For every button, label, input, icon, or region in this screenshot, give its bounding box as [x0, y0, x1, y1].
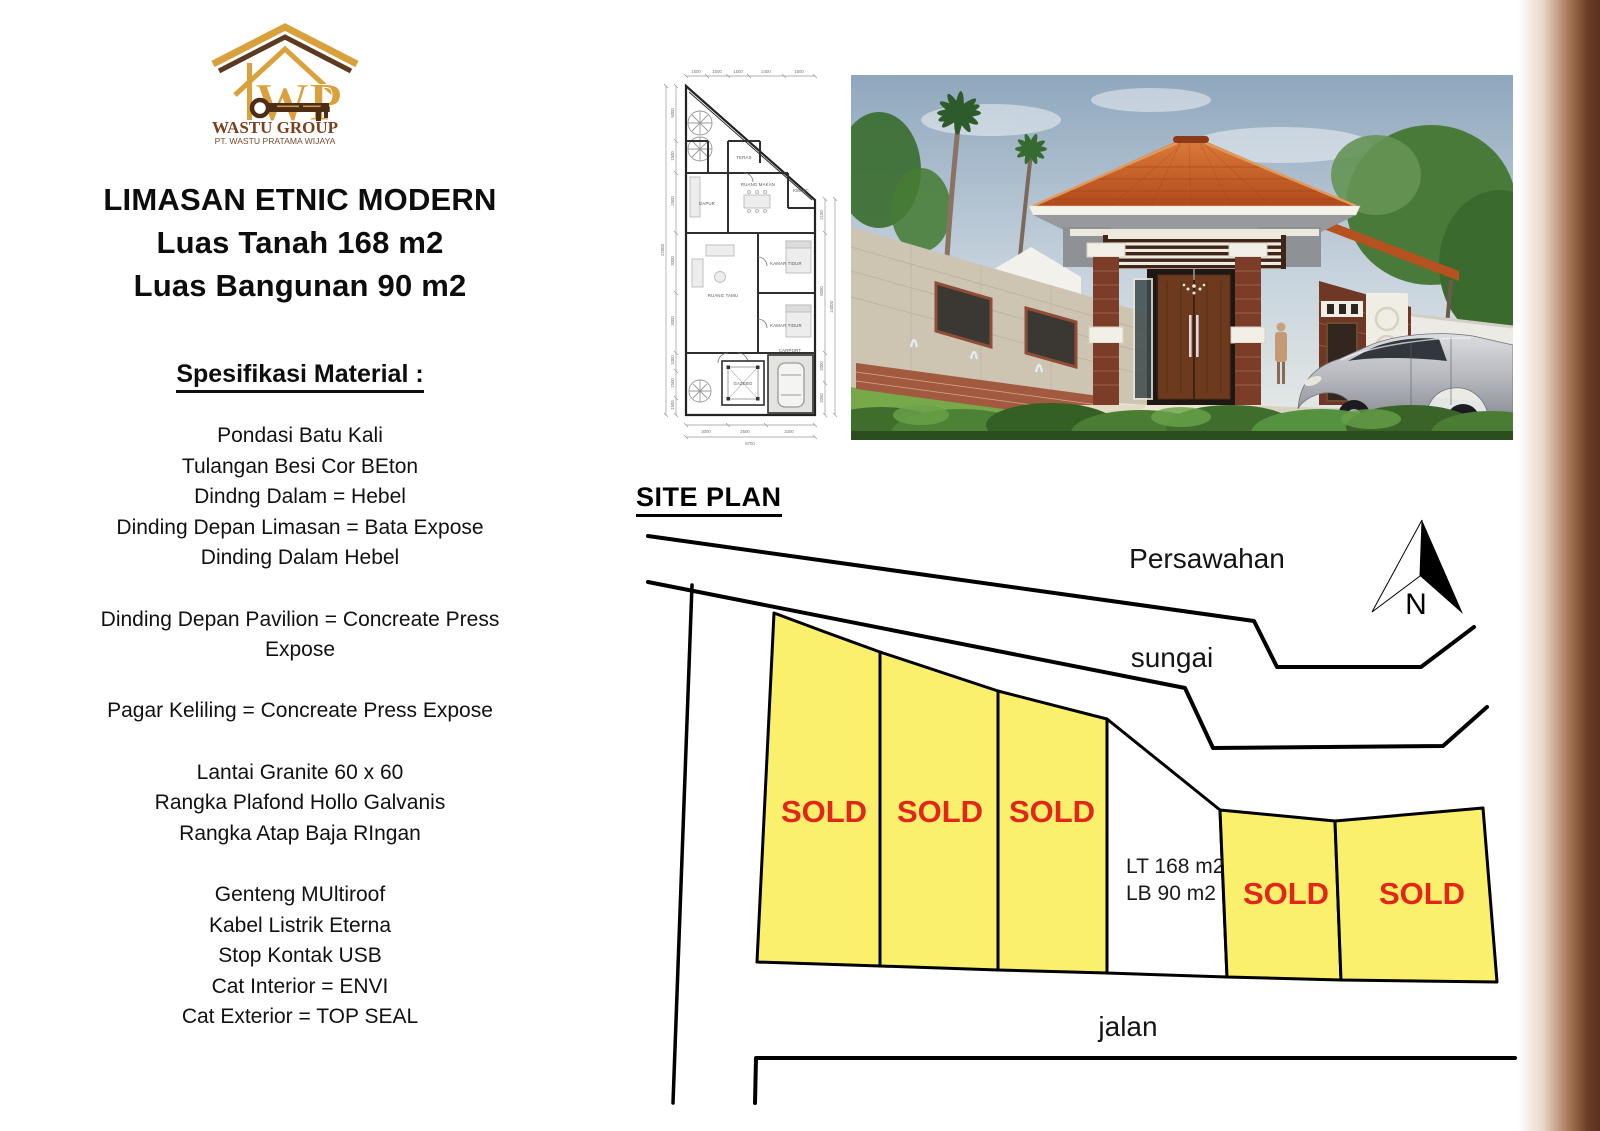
spec-line [30, 727, 570, 758]
sold-label-4: SOLD [1243, 876, 1329, 911]
svg-text:KAMAR TIDUR: KAMAR TIDUR [770, 261, 802, 266]
svg-text:2500: 2500 [740, 429, 750, 434]
svg-text:1000: 1000 [670, 355, 675, 365]
svg-text:1500: 1500 [733, 69, 743, 74]
spec-heading-wrap: Spesifikasi Material : [40, 360, 560, 393]
spec-line: Dinding Depan Limasan = Bata Expose [30, 513, 570, 544]
spec-line: Dinding Depan Pavilion = Concreate Press [30, 605, 570, 636]
svg-text:TERAS: TERAS [736, 155, 751, 160]
svg-text:1500: 1500 [794, 69, 804, 74]
svg-text:DAPUR: DAPUR [699, 201, 715, 206]
svg-text:3200: 3200 [784, 429, 794, 434]
material-spec-list: Pondasi Batu KaliTulangan Besi Cor BEton… [30, 421, 570, 1033]
svg-text:2500: 2500 [670, 378, 675, 388]
spec-line: Dinding Dalam Hebel [30, 543, 570, 574]
spec-line: Tulangan Besi Cor BEton [30, 452, 570, 483]
spec-line: Kabel Listrik Eterna [30, 911, 570, 942]
logo-roof-outer [213, 27, 357, 64]
spec-line: Rangka Plafond Hollo Galvanis [30, 788, 570, 819]
svg-text:8700: 8700 [745, 441, 755, 446]
spec-line: Pondasi Batu Kali [30, 421, 570, 452]
left-road-line [673, 585, 692, 1103]
title-block: LIMASAN ETNIC MODERN Luas Tanah 168 m2 L… [40, 178, 560, 307]
lot-available [1107, 719, 1227, 977]
sold-label-3: SOLD [1009, 794, 1095, 829]
persawahan-label: Persawahan [1129, 543, 1285, 574]
spec-line: Dindng Dalam = Hebel [30, 482, 570, 513]
key-shaft-detail [277, 106, 299, 108]
svg-text:1500: 1500 [691, 69, 701, 74]
wastu-group-logo: WP WASTU GROUP PT. WASTU PRATAMA WIJAYA [183, 16, 367, 158]
spec-line [30, 666, 570, 697]
svg-text:GAZEBO: GAZEBO [733, 381, 753, 386]
car-symbol [778, 363, 804, 407]
svg-text:CARPORT: CARPORT [779, 348, 802, 353]
lot-sold-1 [757, 613, 880, 966]
lot-sold-3 [998, 691, 1107, 973]
north-label: N [1405, 588, 1427, 621]
key-shaft [269, 103, 329, 112]
svg-text:KM/WC: KM/WC [793, 188, 809, 193]
svg-text:KAMAR TIDUR: KAMAR TIDUR [770, 323, 802, 328]
site-plan-drawing: SOLD SOLD SOLD SOLD SOLD LT 168 m2 LB 90… [610, 500, 1530, 1131]
available-lot-lt: LT 168 m2 [1126, 855, 1224, 878]
key-shaft-detail2 [303, 106, 321, 108]
spec-line: Expose [30, 635, 570, 666]
svg-text:1500: 1500 [670, 400, 675, 410]
north-arrow-icon: N [1372, 520, 1463, 621]
spec-line: Stop Kontak USB [30, 941, 570, 972]
svg-text:1500: 1500 [670, 151, 675, 161]
sold-label-2: SOLD [897, 794, 983, 829]
spec-heading: Spesifikasi Material : [176, 360, 423, 393]
svg-text:1500: 1500 [712, 69, 722, 74]
sold-label-1: SOLD [781, 794, 867, 829]
house-render-illustration [851, 75, 1513, 440]
logo-brand-name: WASTU GROUP [212, 118, 338, 137]
spec-line [30, 574, 570, 605]
svg-text:2400: 2400 [761, 69, 771, 74]
svg-text:3000: 3000 [670, 316, 675, 326]
jalan-label: jalan [1097, 1011, 1157, 1042]
sold-label-5: SOLD [1379, 876, 1465, 911]
spec-line: Genteng MUltiroof [30, 880, 570, 911]
svg-text:RUANG TAMU: RUANG TAMU [708, 293, 739, 298]
spec-line: Cat Exterior = TOP SEAL [30, 1002, 570, 1033]
flyer-page: { "logo": { "wp": "WP", "brand": "WASTU … [0, 0, 1600, 1131]
svg-text:2050: 2050 [819, 393, 824, 403]
sungai-label: sungai [1131, 642, 1214, 673]
logo-graphic: WP WASTU GROUP PT. WASTU PRATAMA WIJAYA [183, 16, 367, 158]
spec-line: Cat Interior = ENVI [30, 972, 570, 1003]
right-gradient-strip [1518, 0, 1600, 1131]
land-area-line: Luas Tanah 168 m2 [40, 221, 560, 264]
logo-company-name: PT. WASTU PRATAMA WIJAYA [215, 136, 336, 146]
spec-line: Rangka Atap Baja RIngan [30, 819, 570, 850]
svg-text:8000: 8000 [819, 286, 824, 296]
building-area-line: Luas Bangunan 90 m2 [40, 264, 560, 307]
available-lot-lb: LB 90 m2 [1126, 882, 1216, 905]
svg-text:14000: 14000 [829, 300, 834, 313]
floor-plan-drawing: 1500 1500 1500 2400 1500 5000 1500 2500 … [628, 53, 856, 455]
spec-line [30, 849, 570, 880]
svg-text:2500: 2500 [670, 196, 675, 206]
svg-text:3000: 3000 [701, 429, 711, 434]
jalan-road-line [755, 1058, 1515, 1103]
spec-line: Pagar Keliling = Concreate Press Expose [30, 696, 570, 727]
svg-text:2000: 2000 [819, 361, 824, 371]
svg-text:2150: 2150 [819, 210, 824, 220]
svg-text:5000: 5000 [670, 108, 675, 118]
svg-text:RUANG MAKAN: RUANG MAKAN [741, 182, 775, 187]
svg-text:3000: 3000 [670, 256, 675, 266]
page-title: LIMASAN ETNIC MODERN [40, 178, 560, 221]
svg-text:22000: 22000 [660, 243, 665, 256]
spec-line: Lantai Granite 60 x 60 [30, 758, 570, 789]
